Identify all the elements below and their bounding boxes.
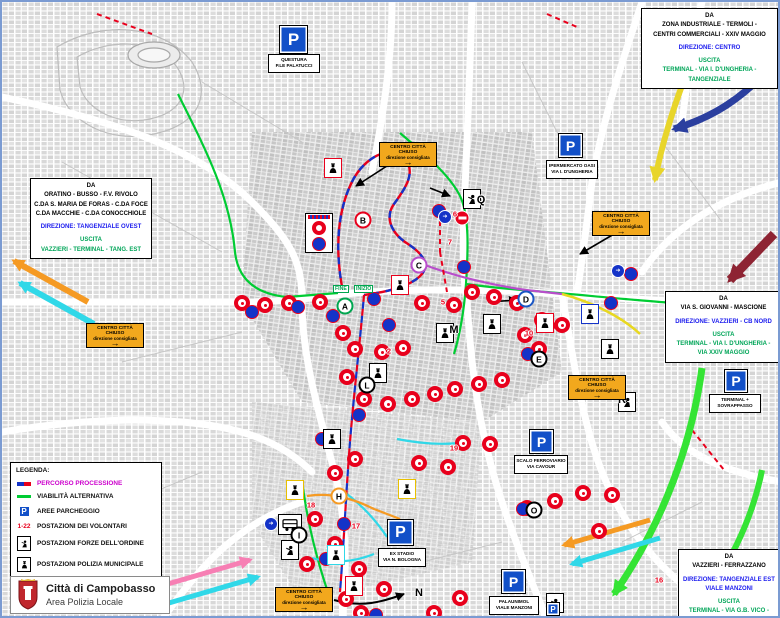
no-stop-marker [494,372,510,388]
infobox-da: DA [645,12,774,21]
legend-label: PERCORSO PROCESSIONE [37,480,122,487]
infobox-from-line: CENTRI COMMERCIALI - XXIV MAGGIO [645,31,774,40]
rect-el [398,280,402,281]
no-stop-marker [299,556,315,572]
path-el [333,555,340,560]
svg-el [284,544,296,557]
no-stop-sign [312,221,326,235]
parking-area-marker [352,408,366,422]
volunteer-post-number: 19 [450,444,458,453]
direction-sign [611,264,625,278]
no-stop-marker [447,381,463,397]
path-el [375,373,382,378]
parking-zone-sign [312,237,326,251]
div-el: EX STADIO [380,551,424,558]
municipal-police-post [601,339,619,359]
title-box: Città di Campobasso Area Polizia Locale [10,576,170,614]
path-el [22,543,27,547]
svg-el [348,580,360,593]
route-point-B: B [355,212,372,229]
div-el: → [595,229,647,234]
div-el: Città di Campobasso Area Polizia Locale [46,583,155,607]
infobox-exit-line: VAZZIERI - TERMINAL - TANG. EST [34,246,148,255]
no-stop-marker [339,369,355,385]
route-point-E: E [531,351,548,368]
road-closed-sign: CENTRO CITTÀ CHIUSOdirezione consigliata… [379,142,437,167]
span-el [17,557,31,572]
no-stop-marker [426,605,442,618]
infobox-exit-line: TERMINAL - VIA I. D'UNGHERIA - [669,340,778,349]
no-stop-marker [353,605,369,618]
path-el [329,439,336,444]
div-el: VIA I. D'UNGHERIA [548,169,596,176]
infobox-direction: DIREZIONE: TANGENZIALE OVEST [34,223,148,232]
no-stop-marker [471,376,487,392]
no-stop-marker [376,581,392,597]
infobox-direction: DIREZIONE: TANGENZIALE EST [682,576,776,585]
no-stop-marker [335,325,351,341]
volunteer-post-number: 17 [352,522,360,531]
parking-area-marker [291,300,305,314]
legend-row-volunteers: 1-22 POSTAZIONI DEI VOLONTARI [16,523,156,530]
infobox-da: DA [669,295,778,304]
circle-el [491,320,494,323]
route-point-I: I [291,527,308,544]
circle-el [23,561,25,563]
no-stop-marker [327,465,343,481]
city-subtitle: Area Polizia Locale [46,597,155,607]
infobox-from-line: C.DA S. MARIA DE FORAS - C.DA FOCE [34,201,148,210]
parking-area-marker [457,260,471,274]
parking-sign-small: P [546,602,560,616]
infobox-from-san-giovanni: DA VIA S. GIOVANNI - MASCIONE DIREZIONE:… [665,291,780,363]
route-point-D: D [518,291,535,308]
no-stop-marker [575,485,591,501]
no-stop-marker [452,590,468,606]
span-el [17,495,31,498]
path-el [21,579,35,581]
no-stop-marker [351,561,367,577]
parking-sign: P [387,519,414,546]
direction-sign [438,210,452,224]
svg-el [401,483,413,496]
circle-el [609,345,612,348]
legend-label: VIABILITÀ ALTERNATIVA [37,493,113,500]
div-el: CENTRO CITTÀ CHIUSO [278,590,330,600]
legend-label: POSTAZIONI DEI VOLONTARI [37,523,127,530]
rect-el [588,309,592,310]
div-el: P.LE PALATUCCI [270,63,318,70]
volunteer-post-number: 5 [441,298,445,307]
div-el: → [382,160,434,165]
police-force-icon [16,536,32,551]
path-el [21,564,26,568]
legend-label: POSTAZIONI FORZE DELL'ORDINE [37,540,144,547]
route-signs-panel [305,213,333,253]
svg-el [326,433,338,446]
legend-row-parking: P AREE PARCHEGGIO [16,506,156,517]
span-el [17,536,31,551]
path-el [292,490,299,495]
route-point-L: L [359,377,376,394]
infobox-from-zona-industriale: DA ZONA INDUSTRIALE - TERMOLI - CENTRI C… [641,8,778,89]
route-point-M: M [449,324,458,336]
svg-el [20,539,29,549]
infobox-from-oratino: DA ORATINO - BUSSO - F.V. RIVOLO C.DA S.… [30,178,152,259]
path-el [489,324,496,329]
svg-el [20,560,29,570]
direction-sign [264,517,278,531]
no-stop-marker [356,391,372,407]
infobox-from-line: ZONA INDUSTRIALE - TERMOLI - [645,21,774,30]
infobox-exit-line: VIA XXIV MAGGIO [669,349,778,358]
no-stop-marker [347,341,363,357]
parking-icon: P [16,506,32,517]
legend-label: POSTAZIONI POLIZIA MUNICIPALE [37,561,143,568]
route-point-O: O [526,502,543,519]
legend-row-alt-viability: VIABILITÀ ALTERNATIVA [16,493,156,500]
parking-sign: P [529,429,554,454]
circle-el [406,485,409,488]
municipal-police-post [286,480,304,500]
municipal-police-post [324,158,342,178]
div-el: → [278,605,330,610]
city-crest [15,579,41,611]
infobox-da: DA [682,553,776,562]
rect-el [376,368,380,369]
rect-el [330,434,334,435]
svg-el [539,317,551,330]
city-title: Città di Campobasso [46,583,155,597]
parking-sign: P [279,25,308,54]
no-stop-marker [486,289,502,305]
infobox-exit-label: USCITA [669,331,778,340]
parking-label: SCALO FERROVIARIOVIA CAVOUR [514,455,568,474]
path-el [404,489,411,494]
parking-label: PALAUNIMOLVIALE MANZONI [489,596,539,615]
municipal-police-post [345,576,363,596]
no-stop-marker [547,493,563,509]
div-el: CENTRO CITTÀ CHIUSO [571,378,623,388]
parking-label: TERMINAL +SOVRAPPASSO [709,394,761,413]
rect-el [23,561,26,562]
no-stop-marker [307,511,323,527]
circle-el [544,319,547,322]
div-el: IPERMERCATO OASI [548,163,596,170]
infobox-exit-line: TERMINAL - VIA I. D'UNGHERIA - TANGENZIA… [645,66,774,85]
municipal-police-post [536,313,554,333]
div-el: PALAUNIMOL [491,599,537,606]
volunteer-post-number: 6 [453,210,457,219]
no-stop-marker [440,459,456,475]
legend-label: AREE PARCHEGGIO [37,508,100,515]
div-el: → [571,393,623,398]
infobox-exit-label: USCITA [682,598,776,607]
sign-header-stripe [308,215,330,219]
no-stop-marker [591,523,607,539]
div-el: CENTRO CITTÀ CHIUSO [595,214,647,224]
no-stop-marker [411,455,427,471]
rect-el [25,588,31,600]
municipal-police-post [483,314,501,334]
rect-el [293,485,297,486]
path-el [330,168,337,173]
road-closed-sign: CENTRO CITTÀ CHIUSOdirezione consigliata… [592,211,650,236]
infobox-from-line: C.DA MACCHIE - C.DA CONOCCHIOLE [34,210,148,219]
infobox-from-line: VIA S. GIOVANNI - MASCIONE [669,304,778,313]
no-stop-marker [347,451,363,467]
svg-el [584,308,596,321]
no-stop-marker [604,487,620,503]
volunteer-post-number: 7 [448,238,452,247]
legend-row-police-forces: POSTAZIONI FORZE DELL'ORDINE [16,536,156,551]
route-start-tag: INIZIO [354,285,373,293]
parking-area-marker [367,292,381,306]
div-el: VIA N. BOLOGNA [380,557,424,564]
legend-row-procession: PERCORSO PROCESSIONE [16,480,156,487]
infobox-direction: DIREZIONE: VAZZIERI - CB NORD [669,318,778,327]
path-el [587,314,594,319]
route-point-A: A [337,298,354,315]
no-stop-marker [464,284,480,300]
circle-el [589,310,592,313]
infobox-direction: VIALE MANZONI [682,585,776,594]
municipal-police-post [398,479,416,499]
volunteer-range-badge: 1-22 [16,523,32,530]
no-stop-marker [482,436,498,452]
no-stop-marker [257,297,273,313]
path-el [287,549,293,554]
no-stop-marker [427,386,443,402]
rect-el [543,318,547,319]
parking-label: IPERMERCATO OASIVIA I. D'UNGHERIA [546,160,598,179]
div-el: VIALE MANZONI [491,605,537,612]
infobox-from-vazzieri: DA VAZZIERI - FERRAZZANO DIREZIONE: TANG… [678,549,780,618]
infobox-exit-label: USCITA [645,57,774,66]
rect-el [24,586,33,589]
route-point-N: N [415,587,423,599]
path-el [397,285,404,290]
municipal-police-post [391,275,409,295]
ellipse-el [138,48,170,62]
map-canvas: DA ZONA INDUSTRIALE - TERMOLI - CENTRI C… [0,0,780,618]
parking-sign: P [501,569,526,594]
infobox-from-line: ORATINO - BUSSO - F.V. RIVOLO [34,191,148,200]
rect-el [331,163,335,164]
rect-el [490,319,494,320]
parking-area-marker [369,608,383,618]
municipal-police-post [327,545,345,565]
div-el: SCALO FERROVIARIO [516,458,566,465]
no-stop-marker [446,297,462,313]
div-el: SOVRAPPASSO [711,403,759,410]
circle-el [294,486,297,489]
volunteer-post-number: 10 [525,329,533,338]
legend: LEGENDA: PERCORSO PROCESSIONE VIABILITÀ … [10,462,162,578]
rect-el [405,484,409,485]
parking-area-marker [245,305,259,319]
circle-el [626,397,629,400]
path-el [542,323,549,328]
no-stop-marker [414,295,430,311]
alt-route-icon [16,495,32,498]
circle-el [331,435,334,438]
div-el: → [89,341,141,346]
volunteer-post-number: 16 [655,576,663,585]
route-end-tag: FINE [333,285,349,293]
rect-el [334,550,338,551]
span-el [17,482,31,486]
circle-el [444,329,447,332]
infobox-da: DA [34,182,148,191]
volunteer-post-number: 2 [387,347,391,356]
municipal-police-icon [16,557,32,572]
route-point-H: H [331,488,348,505]
circle-el [332,164,335,167]
road-closed-sign: CENTRO CITTÀ CHIUSOdirezione consigliata… [275,587,333,612]
parking-area-marker [382,318,396,332]
infobox-exit-line: TERMINAL - VIA G.B. VICO - [682,607,776,616]
parking-area-marker [604,296,618,310]
svg-el [330,549,342,562]
path-el [351,586,358,591]
svg-el [486,318,498,331]
svg-el [289,484,301,497]
path-el [442,333,449,338]
parking-area-marker [337,517,351,531]
circle-el [335,551,338,554]
municipal-police-post [581,304,599,324]
legend-title: LEGENDA: [16,467,156,474]
infobox-exit-label: USCITA [34,236,148,245]
path-el [469,198,475,203]
parking-area-marker [624,267,638,281]
infobox-direction: DIREZIONE: CENTRO [645,44,774,53]
circle-el [289,545,292,548]
rect-el [608,344,612,345]
span-el: P [19,506,30,517]
infobox-from-line: VAZZIERI - FERRAZZANO [682,562,776,571]
legend-row-municipal-police: POSTAZIONI POLIZIA MUNICIPALE [16,557,156,572]
circle-el [23,540,25,542]
circle-el [471,194,474,197]
route-point-C: C [411,257,428,274]
municipal-police-post [323,429,341,449]
div-el: VIA CAVOUR [516,464,566,471]
circle-el [353,582,356,585]
rect-el [443,328,447,329]
parking-label: QUESTURAP.LE PALATUCCI [268,54,320,73]
volunteer-post-number: 18 [307,501,315,510]
parking-label: EX STADIOVIA N. BOLOGNA [378,548,426,567]
no-stop-marker [395,340,411,356]
parking-sign: P [558,133,583,158]
road-closed-sign: CENTRO CITTÀ CHIUSOdirezione consigliata… [86,323,144,348]
parking-sign: P [724,369,748,393]
path-el [607,349,614,354]
svg-el [604,343,616,356]
circle-el [399,281,402,284]
no-stop-marker [312,294,328,310]
div-el: CENTRO CITTÀ CHIUSO [382,145,434,155]
div-el: QUESTURA [270,57,318,64]
circle-el [285,527,288,530]
route-point-Q: Q [477,194,486,206]
svg-el [327,162,339,175]
circle-el [377,369,380,372]
svg-el [394,279,406,292]
div-el: TERMINAL + [711,397,759,404]
svg-el [372,367,384,380]
procession-route-icon [16,482,32,486]
no-stop-marker [554,317,570,333]
no-stop-marker [380,396,396,412]
no-stop-marker [404,391,420,407]
div-el: CENTRO CITTÀ CHIUSO [89,326,141,336]
road-closed-sign: CENTRO CITTÀ CHIUSOdirezione consigliata… [568,375,626,400]
rect-el [352,581,356,582]
